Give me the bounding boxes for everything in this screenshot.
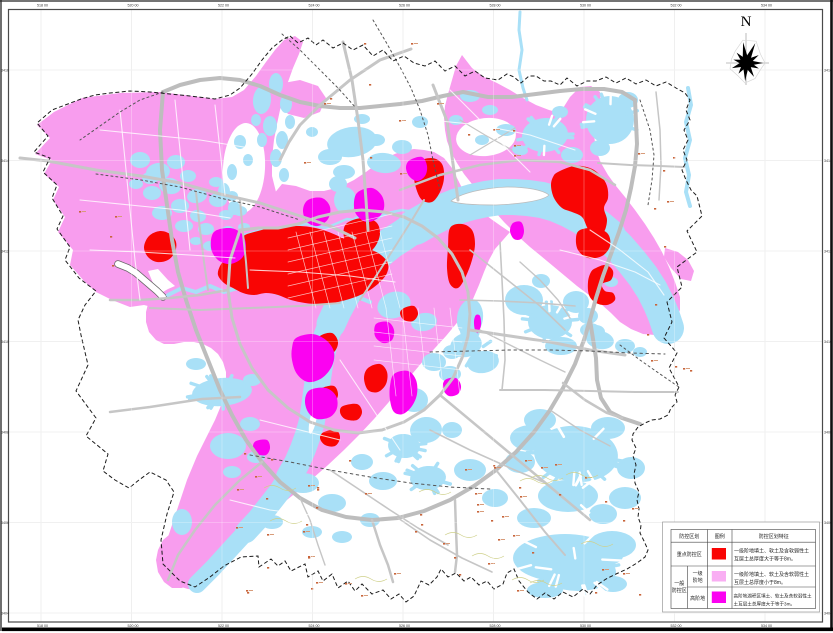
- svg-text:N: N: [741, 14, 752, 30]
- svg-text:522 00: 522 00: [218, 624, 229, 628]
- svg-text:526 00: 526 00: [399, 624, 410, 628]
- svg-text:520 00: 520 00: [128, 624, 139, 628]
- svg-text:互层土总厚度大于等于8m。: 互层土总厚度大于等于8m。: [734, 556, 796, 563]
- svg-text:534 00: 534 00: [761, 624, 772, 628]
- svg-text:防控区: 防控区: [672, 587, 687, 594]
- svg-text:524 00: 524 00: [309, 624, 320, 628]
- svg-text:防控区划特征: 防控区划特征: [759, 533, 789, 540]
- svg-text:518 00: 518 00: [37, 624, 48, 628]
- svg-text:3408: 3408: [1, 431, 9, 435]
- svg-text:534 00: 534 00: [761, 4, 772, 8]
- svg-text:3416: 3416: [1, 69, 9, 73]
- svg-text:高阶地: 高阶地: [690, 595, 705, 602]
- svg-text:532 00: 532 00: [671, 624, 682, 628]
- svg-text:3412: 3412: [1, 250, 9, 254]
- svg-text:3404: 3404: [1, 612, 9, 616]
- svg-text:520 00: 520 00: [128, 4, 139, 8]
- svg-text:一级: 一级: [693, 570, 703, 577]
- svg-text:524 00: 524 00: [309, 4, 320, 8]
- svg-text:一级阶地填土、软土及含软弱性土: 一级阶地填土、软土及含软弱性土: [734, 571, 809, 578]
- svg-text:528 00: 528 00: [490, 624, 501, 628]
- svg-text:528 00: 528 00: [490, 4, 501, 8]
- svg-text:图例: 图例: [715, 533, 725, 540]
- svg-text:522 00: 522 00: [218, 4, 229, 8]
- svg-text:530 00: 530 00: [580, 624, 591, 628]
- svg-text:526 00: 526 00: [399, 4, 410, 8]
- svg-text:互层土总厚度小于8m。: 互层土总厚度小于8m。: [734, 579, 786, 586]
- svg-text:3414: 3414: [1, 159, 9, 163]
- svg-text:土互层土总厚度大于等于3m。: 土互层土总厚度大于等于3m。: [734, 601, 796, 608]
- svg-text:一般: 一般: [674, 580, 684, 587]
- svg-text:3406: 3406: [1, 521, 9, 525]
- svg-text:阶地: 阶地: [693, 577, 703, 584]
- svg-text:一级阶地填土、软土及含软弱性土: 一级阶地填土、软土及含软弱性土: [734, 548, 809, 555]
- svg-text:重点防控区: 重点防控区: [677, 551, 702, 558]
- svg-text:518 00: 518 00: [37, 4, 48, 8]
- svg-text:3410: 3410: [1, 340, 9, 344]
- svg-text:530 00: 530 00: [580, 4, 591, 8]
- svg-text:防控区划: 防控区划: [679, 533, 699, 540]
- svg-text:532 00: 532 00: [671, 4, 682, 8]
- svg-text:高阶地湖积区填土、软土及含软弱性土: 高阶地湖积区填土、软土及含软弱性土: [734, 593, 813, 600]
